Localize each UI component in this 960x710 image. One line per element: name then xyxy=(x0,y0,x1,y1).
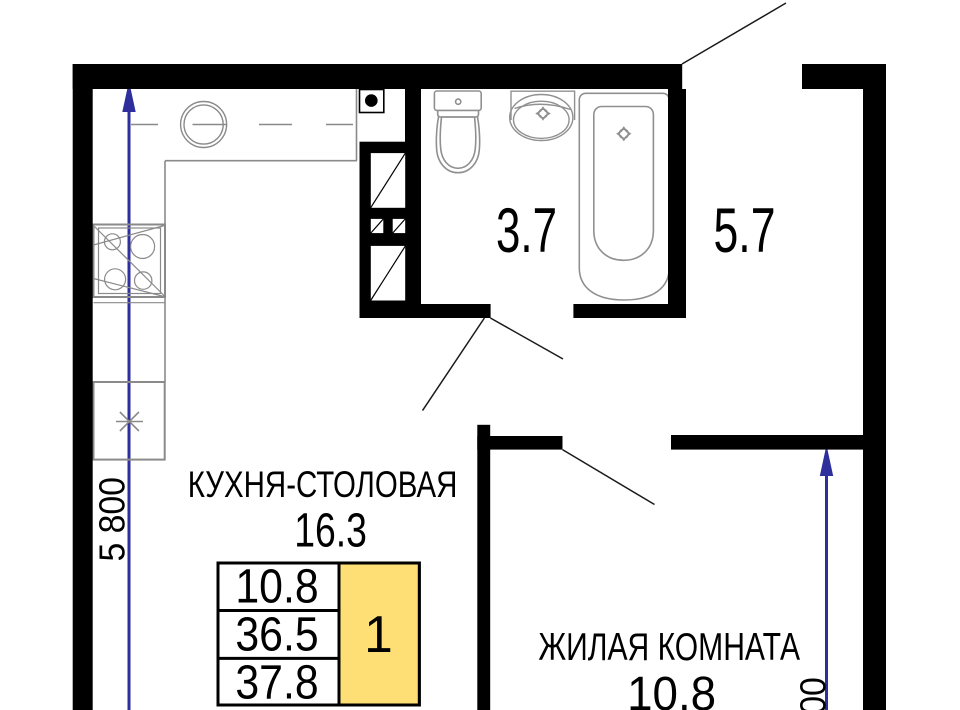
svg-text:37.8: 37.8 xyxy=(235,657,318,710)
svg-text:10.8: 10.8 xyxy=(235,561,318,614)
svg-text:36.5: 36.5 xyxy=(235,608,318,661)
svg-text:ЖИЛАЯ КОМНАТА: ЖИЛАЯ КОМНАТА xyxy=(538,626,800,669)
svg-text:3.7: 3.7 xyxy=(496,196,557,266)
svg-text:3 400: 3 400 xyxy=(793,677,834,710)
svg-text:16.3: 16.3 xyxy=(294,505,367,558)
svg-text:1: 1 xyxy=(364,605,393,663)
svg-text:5.7: 5.7 xyxy=(714,196,776,266)
svg-text:5 800: 5 800 xyxy=(91,477,132,562)
svg-text:10.8: 10.8 xyxy=(627,668,716,710)
svg-text:КУХНЯ-СТОЛОВАЯ: КУХНЯ-СТОЛОВАЯ xyxy=(188,463,458,505)
